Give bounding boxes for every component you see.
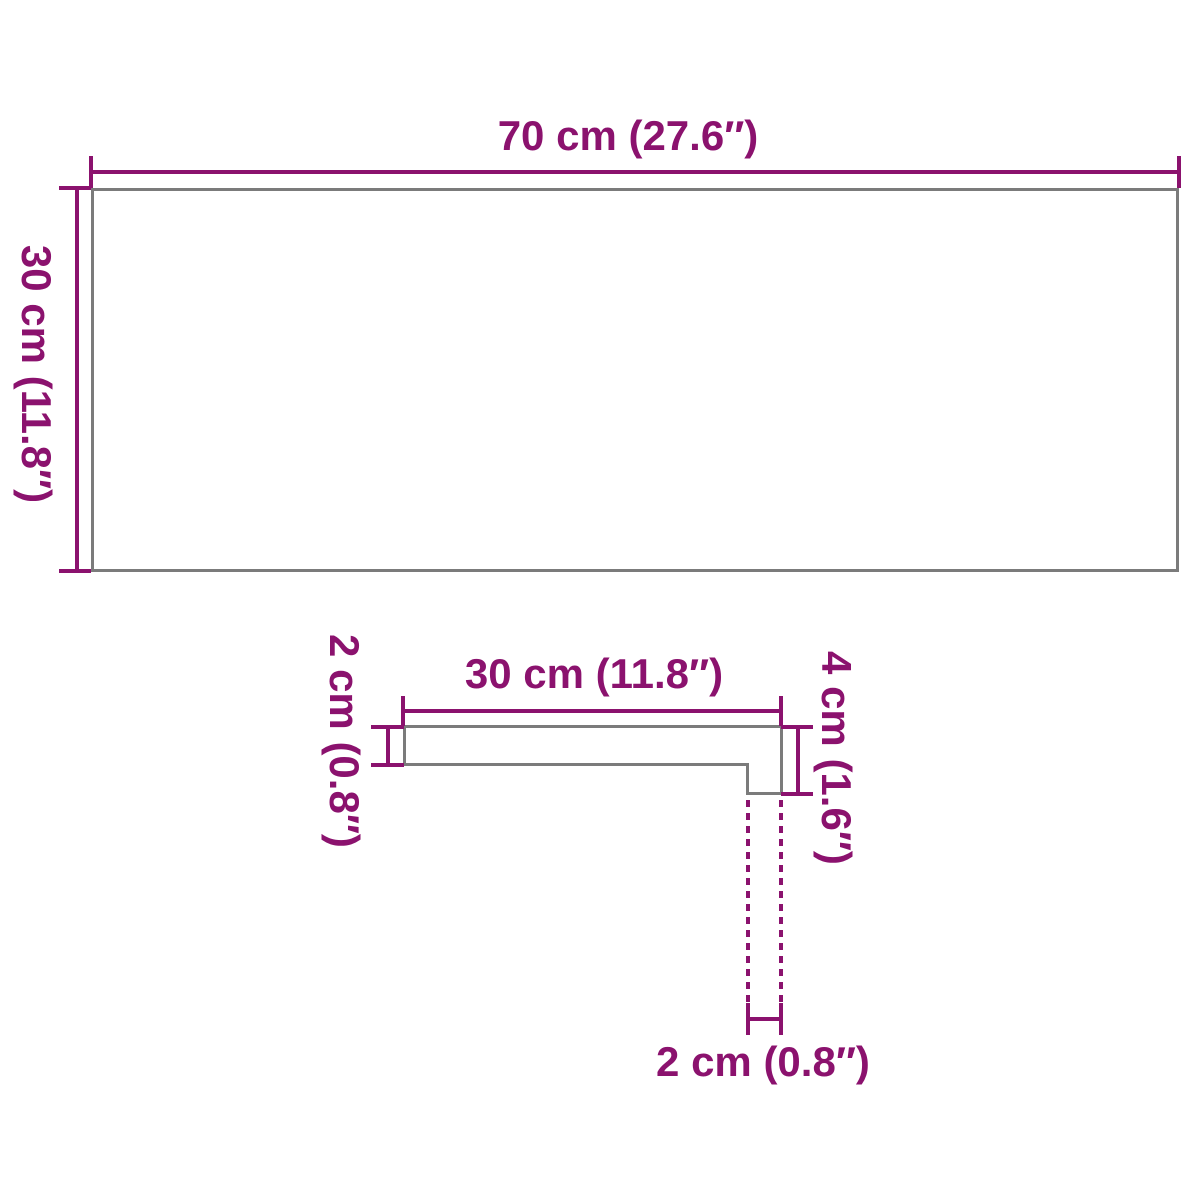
nose-thickness-dim-tick-left	[746, 1003, 750, 1035]
board-face-outline	[91, 188, 1179, 572]
nose-extension-line-right	[779, 800, 783, 1004]
dimension-diagram: 70 cm (27.6″) 30 cm (11.8″) 30 cm (11.8″…	[0, 0, 1200, 1200]
profile-polygon	[405, 727, 782, 794]
side-height-dim-label: 30 cm (11.8″)	[14, 174, 58, 574]
side-height-dim-line	[75, 188, 79, 573]
profile-thickness-dim-label: 2 cm (0.8″)	[322, 561, 366, 921]
top-width-dim-tick-left	[89, 156, 93, 188]
profile-width-dim-tick-left	[401, 696, 405, 726]
nose-extension-line-left	[746, 800, 750, 1004]
nose-thickness-dim-line	[746, 1017, 783, 1021]
nose-thickness-dim-tick-right	[779, 1003, 783, 1035]
nose-height-dim-tick-top	[781, 725, 813, 729]
profile-width-dim-tick-right	[779, 696, 783, 726]
profile-thickness-dim-tick-top	[371, 725, 404, 729]
side-height-dim-tick-top	[59, 186, 91, 190]
profile-width-dim-label: 30 cm (11.8″)	[374, 652, 814, 696]
top-width-dim-line	[91, 170, 1181, 174]
stair-profile-outline	[403, 725, 785, 797]
nose-thickness-dim-label: 2 cm (0.8″)	[563, 1040, 963, 1084]
side-height-dim-tick-bottom	[59, 569, 91, 573]
profile-width-dim-line	[403, 709, 783, 713]
profile-thickness-dim-tick-bottom	[371, 763, 404, 767]
profile-thickness-dim-line	[386, 727, 390, 767]
nose-height-dim-tick-bottom	[781, 792, 813, 796]
top-width-dim-label: 70 cm (27.6″)	[398, 114, 858, 158]
top-width-dim-tick-right	[1177, 156, 1181, 188]
nose-height-dim-line	[796, 727, 800, 796]
nose-height-dim-label: 4 cm (1.6″)	[814, 578, 858, 938]
